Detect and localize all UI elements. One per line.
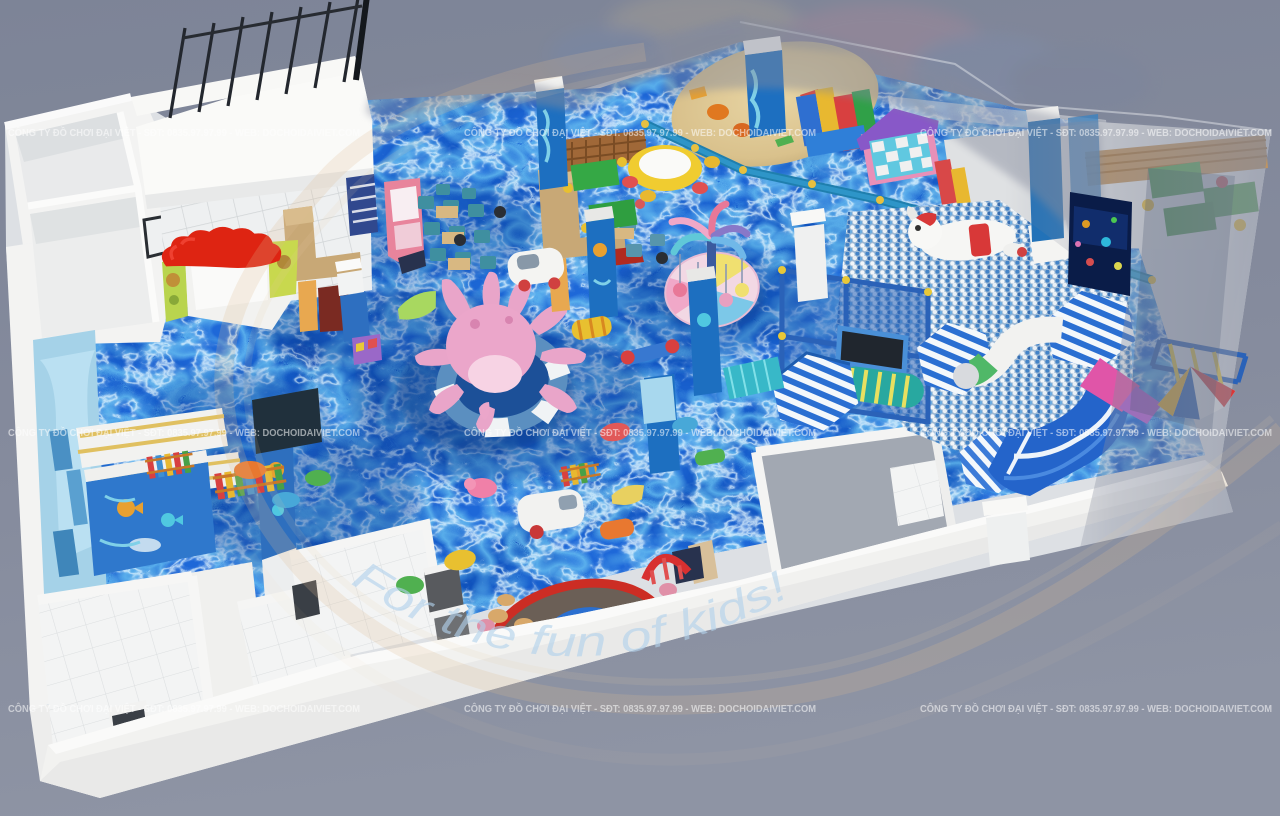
svg-text:CÔNG TY ĐỒ CHƠI ĐẠI VIỆT - SĐT: CÔNG TY ĐỒ CHƠI ĐẠI VIỆT - SĐT: 0835.97.… [920, 426, 1272, 439]
svg-text:CÔNG TY ĐỒ CHƠI ĐẠI VIỆT - SĐT: CÔNG TY ĐỒ CHƠI ĐẠI VIỆT - SĐT: 0835.97.… [920, 126, 1272, 139]
svg-text:CÔNG TY ĐỒ CHƠI ĐẠI VIỆT - SĐT: CÔNG TY ĐỒ CHƠI ĐẠI VIỆT - SĐT: 0835.97.… [8, 426, 360, 439]
svg-text:CÔNG TY ĐỒ CHƠI ĐẠI VIỆT - SĐT: CÔNG TY ĐỒ CHƠI ĐẠI VIỆT - SĐT: 0835.97.… [464, 702, 816, 715]
svg-text:CÔNG TY ĐỒ CHƠI ĐẠI VIỆT - SĐT: CÔNG TY ĐỒ CHƠI ĐẠI VIỆT - SĐT: 0835.97.… [464, 126, 816, 139]
svg-text:CÔNG TY ĐỒ CHƠI ĐẠI VIỆT - SĐT: CÔNG TY ĐỒ CHƠI ĐẠI VIỆT - SĐT: 0835.97.… [8, 126, 360, 139]
svg-text:CÔNG TY ĐỒ CHƠI ĐẠI VIỆT - SĐT: CÔNG TY ĐỒ CHƠI ĐẠI VIỆT - SĐT: 0835.97.… [920, 702, 1272, 715]
svg-text:CÔNG TY ĐỒ CHƠI ĐẠI VIỆT - SĐT: CÔNG TY ĐỒ CHƠI ĐẠI VIỆT - SĐT: 0835.97.… [8, 702, 360, 715]
svg-text:CÔNG TY ĐỒ CHƠI ĐẠI VIỆT - SĐT: CÔNG TY ĐỒ CHƠI ĐẠI VIỆT - SĐT: 0835.97.… [464, 426, 816, 439]
